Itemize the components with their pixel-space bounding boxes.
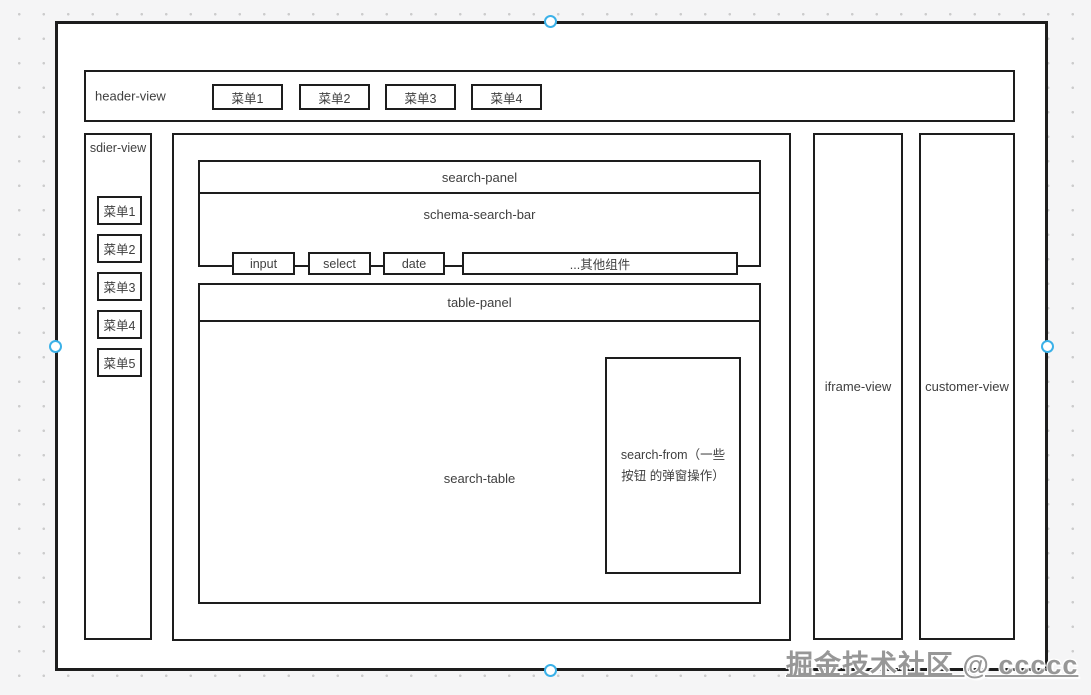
sidebar-menu-4[interactable]: 菜单4 bbox=[97, 310, 142, 339]
iframe-view-box: iframe-view bbox=[813, 133, 903, 640]
sidebar-menu-5[interactable]: 菜单5 bbox=[97, 348, 142, 377]
content-view-box: search-panel schema-search-bar input sel… bbox=[172, 133, 791, 641]
schema-input-component[interactable]: input bbox=[232, 252, 295, 275]
schema-select-component[interactable]: select bbox=[308, 252, 371, 275]
sidebar-menu-3[interactable]: 菜单3 bbox=[97, 272, 142, 301]
search-panel-title: search-panel bbox=[200, 162, 759, 194]
resize-handle-right[interactable] bbox=[1041, 340, 1054, 353]
table-panel-body: search-table search-from（一些按钮 的弹窗操作） bbox=[200, 322, 759, 600]
diagram-canvas: header-view 菜单1 菜单2 菜单3 菜单4 sdier-view 菜… bbox=[0, 0, 1091, 695]
search-form-box: search-from（一些按钮 的弹窗操作） bbox=[605, 357, 741, 574]
iframe-view-label: iframe-view bbox=[825, 379, 891, 394]
resize-handle-left[interactable] bbox=[49, 340, 62, 353]
sidebar-menu-1[interactable]: 菜单1 bbox=[97, 196, 142, 225]
table-panel-title: table-panel bbox=[200, 285, 759, 322]
header-view-box: header-view 菜单1 菜单2 菜单3 菜单4 bbox=[84, 70, 1015, 122]
schema-other-components[interactable]: ...其他组件 bbox=[462, 252, 738, 275]
sidebar-label: sdier-view bbox=[86, 141, 150, 155]
header-view-label: header-view bbox=[95, 89, 166, 104]
watermark-text: 掘金技术社区 @ ccccc bbox=[786, 643, 1091, 682]
schema-search-bar-label: schema-search-bar bbox=[200, 207, 759, 222]
header-menu-4[interactable]: 菜单4 bbox=[471, 84, 542, 110]
sidebar-menu-2[interactable]: 菜单2 bbox=[97, 234, 142, 263]
search-panel-box: search-panel schema-search-bar input sel… bbox=[198, 160, 761, 267]
customer-view-box: customer-view bbox=[919, 133, 1015, 640]
header-menu-2[interactable]: 菜单2 bbox=[299, 84, 370, 110]
schema-date-component[interactable]: date bbox=[383, 252, 445, 275]
header-menu-3[interactable]: 菜单3 bbox=[385, 84, 456, 110]
table-panel-box: table-panel search-table search-from（一些按… bbox=[198, 283, 761, 604]
customer-view-label: customer-view bbox=[925, 379, 1009, 394]
resize-handle-bottom[interactable] bbox=[544, 664, 557, 677]
schema-search-bar: schema-search-bar input select date ...其… bbox=[200, 207, 759, 278]
header-menu-1[interactable]: 菜单1 bbox=[212, 84, 283, 110]
sidebar-box: sdier-view 菜单1 菜单2 菜单3 菜单4 菜单5 bbox=[84, 133, 152, 640]
resize-handle-top[interactable] bbox=[544, 15, 557, 28]
